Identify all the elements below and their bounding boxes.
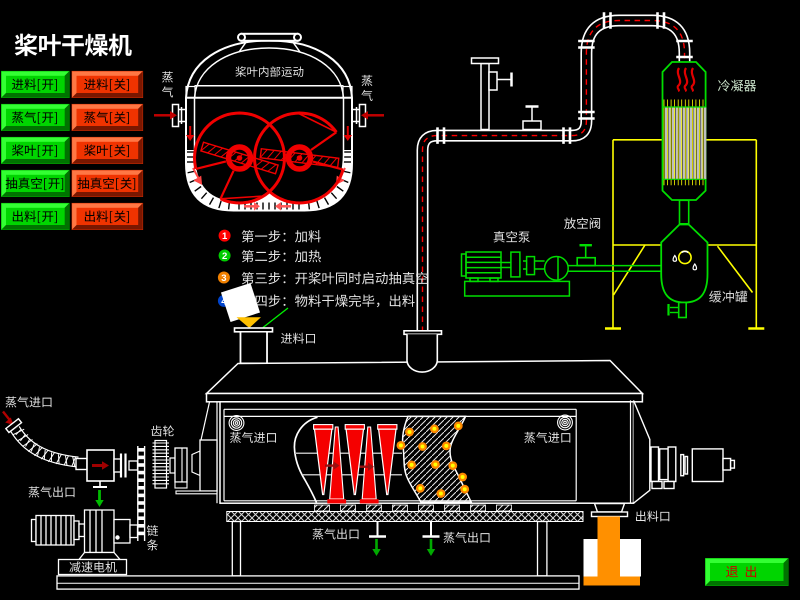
svg-text:2: 2 [222, 251, 227, 262]
svg-text:1: 1 [222, 231, 228, 242]
svg-text:3: 3 [221, 273, 226, 284]
